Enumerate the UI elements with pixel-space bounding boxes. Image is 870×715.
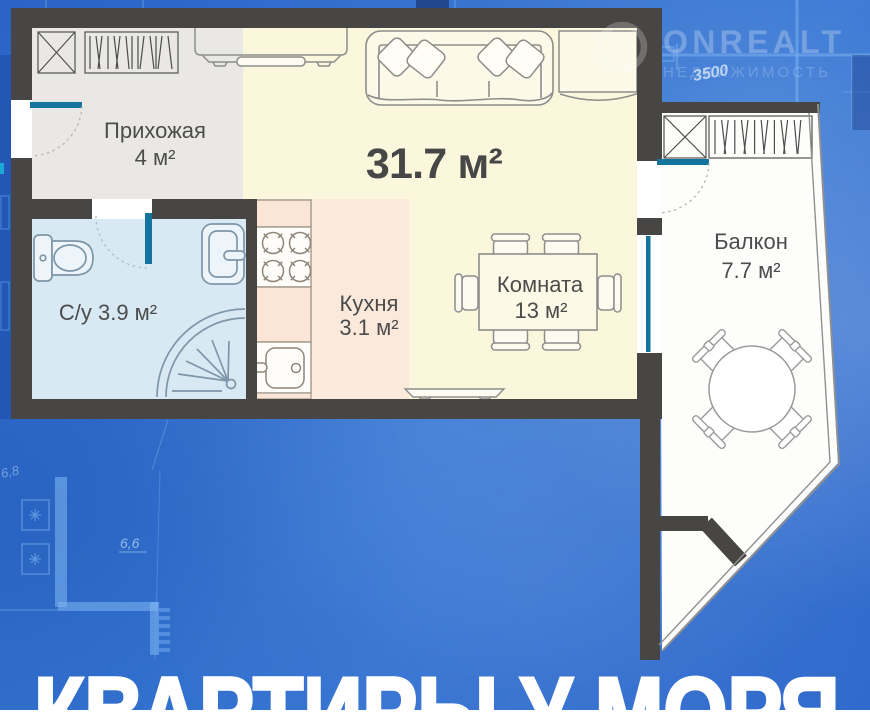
svg-text:Комната: Комната xyxy=(497,272,584,297)
svg-text:НЕДВИЖИМОСТЬ: НЕДВИЖИМОСТЬ xyxy=(663,64,831,81)
svg-text:Балкон: Балкон xyxy=(714,229,788,254)
svg-text:Кухня: Кухня xyxy=(340,291,399,316)
svg-text:13 м²: 13 м² xyxy=(514,298,567,323)
svg-text:С/у 3.9 м²: С/у 3.9 м² xyxy=(59,300,157,325)
svg-text:6,6: 6,6 xyxy=(120,535,140,551)
svg-text:7.7 м²: 7.7 м² xyxy=(721,258,780,283)
svg-text:Прихожая: Прихожая xyxy=(104,118,206,143)
svg-text:4 м²: 4 м² xyxy=(135,145,176,170)
svg-text:КВАРТИРЫ У МОРЯ: КВАРТИРЫ У МОРЯ xyxy=(34,658,839,710)
svg-text:ONREALT: ONREALT xyxy=(663,24,845,60)
svg-text:31.7 м²: 31.7 м² xyxy=(366,140,503,188)
svg-text:3.1 м²: 3.1 м² xyxy=(339,315,398,340)
